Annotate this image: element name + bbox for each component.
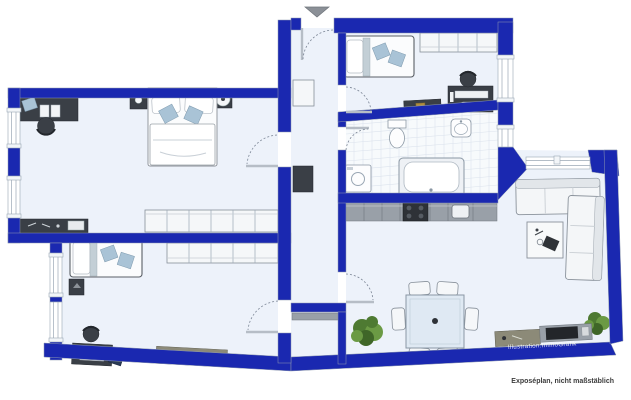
washing-machine <box>345 165 371 192</box>
caption-text: Exposéplan, nicht maßstäblich <box>511 378 614 385</box>
window <box>526 156 590 169</box>
dining-chair <box>391 308 405 331</box>
hall-dresser <box>293 166 313 192</box>
window <box>7 108 21 148</box>
window <box>7 176 21 218</box>
window <box>497 125 514 147</box>
floorplan-svg: Illustration:ImmoGrafik Exposéplan, nich… <box>0 0 631 400</box>
stove <box>403 202 428 221</box>
single-bed <box>344 36 414 77</box>
kitchen-counter <box>346 202 497 221</box>
papers <box>40 105 49 117</box>
bathtub <box>399 158 464 197</box>
window <box>49 253 63 297</box>
papers <box>51 105 60 117</box>
niche-shelf <box>292 313 338 320</box>
single-bed <box>70 239 142 277</box>
table-decor <box>432 318 438 324</box>
dining-chair <box>437 281 459 295</box>
dining-chair <box>409 281 431 295</box>
sink <box>451 119 471 137</box>
hall-cabinet <box>293 80 314 106</box>
window <box>49 302 63 342</box>
shelf <box>420 33 497 52</box>
kitchen-sink <box>452 205 469 218</box>
wardrobe <box>167 243 278 263</box>
dining-chair <box>464 308 479 331</box>
window <box>497 55 514 102</box>
entrance-arrow-icon <box>305 7 329 17</box>
sideboard-box <box>68 221 84 230</box>
room-hall-floor <box>291 28 338 303</box>
tv-icon <box>546 326 579 340</box>
double-bed <box>148 88 217 166</box>
toilet <box>388 120 406 148</box>
coffee-table <box>527 222 563 258</box>
floorplan-canvas: Illustration:ImmoGrafik Exposéplan, nich… <box>0 0 631 400</box>
wardrobe <box>145 210 278 232</box>
sideboard-decor <box>56 224 59 227</box>
